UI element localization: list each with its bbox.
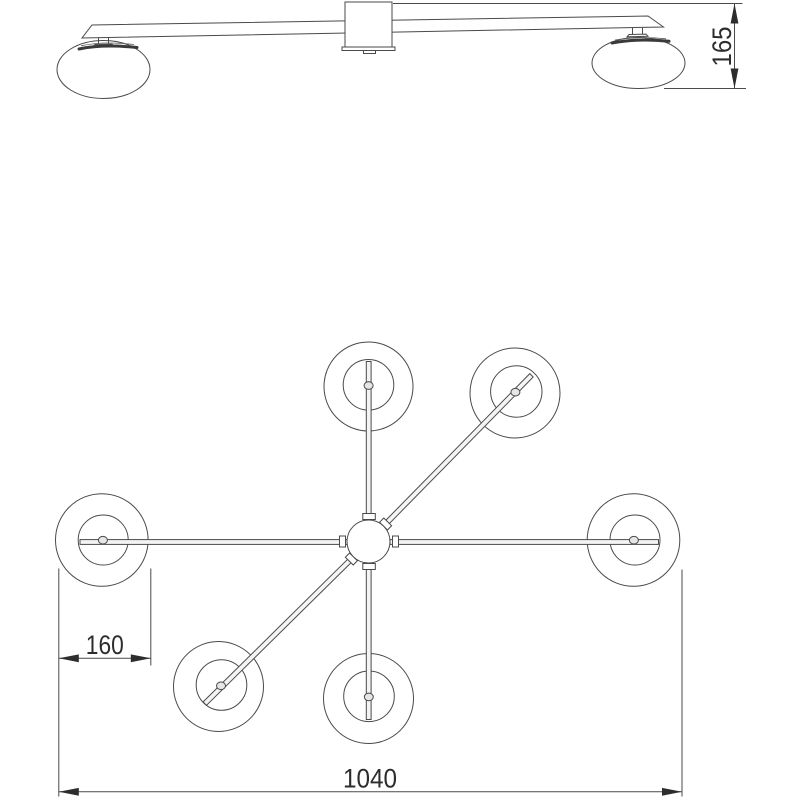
fitting-south bbox=[364, 693, 373, 701]
dimension-shade-diameter: 160 bbox=[59, 569, 151, 797]
canopy-box bbox=[345, 2, 392, 47]
drawing-canvas: 165 bbox=[0, 0, 800, 800]
lamp-shade bbox=[592, 38, 685, 89]
lamp-shade bbox=[57, 41, 150, 99]
collar-north bbox=[363, 514, 376, 520]
collar-east bbox=[393, 536, 399, 547]
arrowhead-left bbox=[59, 654, 79, 662]
arm-west bbox=[80, 540, 348, 545]
side-view: 165 bbox=[57, 2, 746, 99]
arm-northeast bbox=[382, 374, 533, 528]
dimension-shade-diameter-label: 160 bbox=[86, 630, 124, 660]
collar-south bbox=[363, 564, 376, 570]
canopy-tab bbox=[364, 51, 376, 54]
dimension-overall-width-label: 1040 bbox=[343, 764, 397, 794]
collar-west bbox=[340, 536, 346, 547]
arm-east bbox=[390, 540, 659, 545]
arrowhead-right bbox=[662, 788, 682, 796]
arrowhead-up bbox=[731, 4, 739, 24]
fitting-east bbox=[629, 536, 638, 544]
canopy-base-plate bbox=[342, 47, 395, 51]
arrowhead-right bbox=[131, 654, 151, 662]
side-lamp-right bbox=[592, 28, 685, 89]
side-lamp-left bbox=[57, 38, 150, 99]
fitting-west bbox=[98, 536, 107, 544]
fitting-northeast bbox=[511, 388, 520, 396]
fitting-southwest bbox=[217, 682, 226, 690]
lamp-rim-band bbox=[79, 46, 137, 49]
technical-drawing: 165 bbox=[0, 0, 800, 800]
fitting-north bbox=[364, 382, 373, 390]
arm-southwest bbox=[203, 555, 355, 705]
central-hub bbox=[347, 520, 390, 563]
arrowhead-left bbox=[59, 788, 79, 796]
dimension-height: 165 bbox=[393, 4, 746, 89]
lamp-stem-cap bbox=[627, 34, 648, 37]
arrowhead-down bbox=[731, 69, 739, 89]
lamp-stem bbox=[633, 28, 643, 35]
plan-view: 160 1040 bbox=[56, 342, 683, 797]
dimension-height-label: 165 bbox=[707, 27, 737, 67]
lamp-rim-band bbox=[612, 40, 669, 43]
